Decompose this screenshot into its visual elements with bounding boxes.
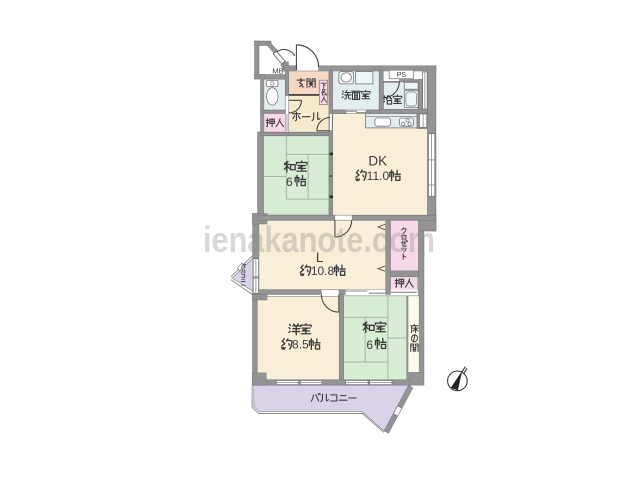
- svg-text:ienakanote.com: ienakanote.com: [203, 219, 435, 260]
- svg-text:DK: DK: [368, 153, 387, 168]
- svg-text:11.0: 11.0: [367, 169, 390, 183]
- svg-text:6: 6: [366, 338, 373, 352]
- svg-text:MB: MB: [272, 67, 283, 76]
- svg-text:10.8: 10.8: [311, 264, 335, 278]
- svg-text:6: 6: [286, 175, 293, 189]
- svg-text:8.5: 8.5: [292, 338, 309, 352]
- svg-text:PS: PS: [397, 72, 407, 79]
